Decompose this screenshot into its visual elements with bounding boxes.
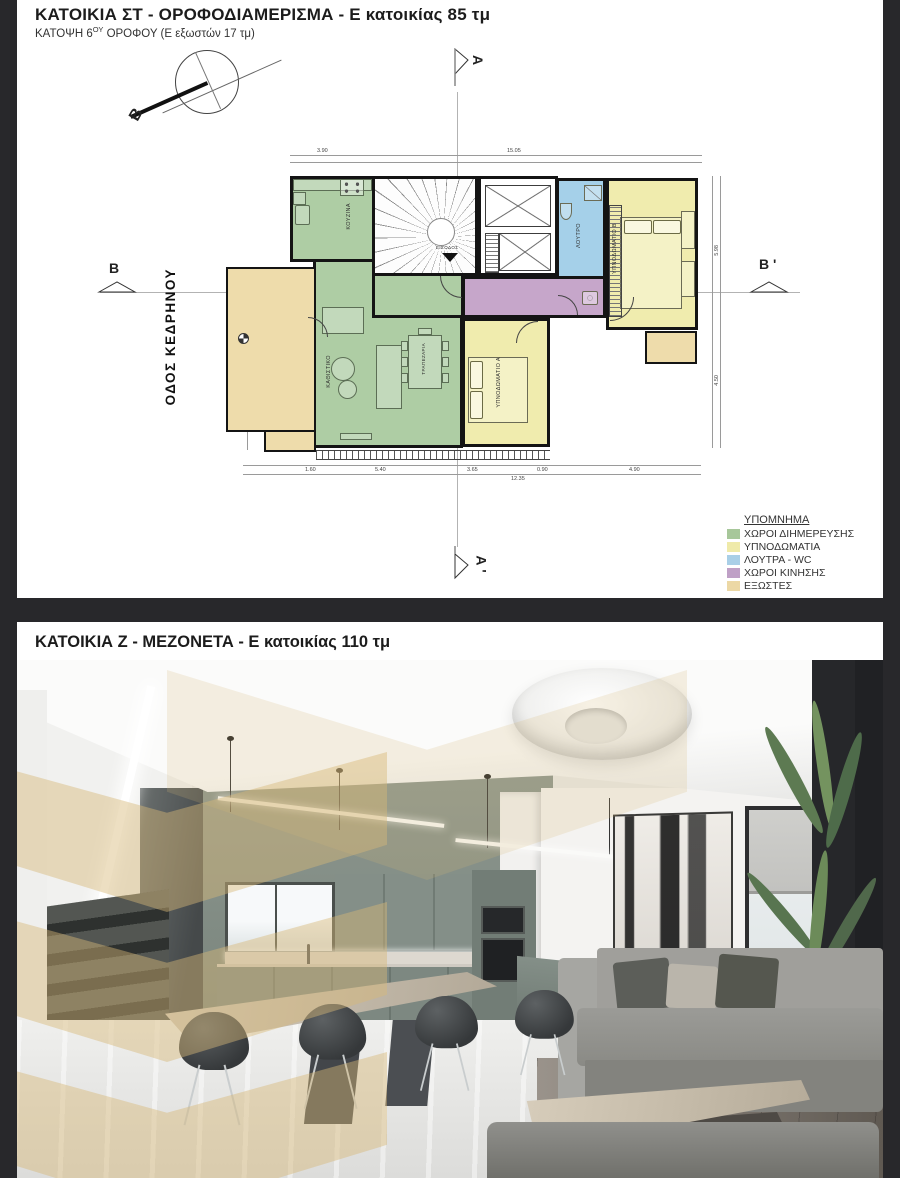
balcony-right xyxy=(645,331,697,364)
legend-item: ΛΟΥΤΡΑ - WC xyxy=(727,553,854,566)
pendant-anchor xyxy=(227,736,234,741)
level-marker xyxy=(238,333,249,344)
entrance-arrow xyxy=(442,253,458,262)
brochure-page: ΚΑΤΟΙΚΙΑ ΣΤ - ΟΡΟΦΟΔΙΑΜΕΡΙΣΜΑ - Ε κατοικ… xyxy=(0,0,900,1178)
kitchen-window-mullion xyxy=(275,884,277,952)
ottoman xyxy=(487,1122,879,1178)
dining-chair xyxy=(401,341,408,351)
service-ladder xyxy=(485,233,499,273)
section-marker-a-label: Α xyxy=(470,55,486,65)
sofa-cushion-dark xyxy=(613,957,674,1013)
plan-subtitle: ΚΑΤΟΨΗ 6ΟΥ ΟΡΟΦΟΥ (Ε εξωστών 17 τμ) xyxy=(35,25,255,40)
north-compass: Β xyxy=(127,40,287,150)
elevator-cab xyxy=(499,233,551,271)
plan-subtitle-sup: ΟΥ xyxy=(93,25,104,34)
coffee-table-round-2 xyxy=(338,380,357,399)
tv-bench xyxy=(340,433,372,440)
legend: ΥΠΟΜΝΗΜΑ ΧΩΡΟΙ ΔΙΗΜΕΡΕΥΣΗΣ ΥΠΝΟΔΩΜΑΤΙΑ Λ… xyxy=(727,514,854,592)
plan-subtitle-suffix: ΟΡΟΦΟΥ (Ε εξωστών 17 τμ) xyxy=(103,28,255,40)
fridge xyxy=(293,192,306,205)
plan-subtitle-prefix: ΚΑΤΟΨΗ 6 xyxy=(35,28,93,40)
render-title: ΚΑΤΟΙΚΙΑ Ζ - ΜΕΖΟΝΕΤΑ - Ε κατοικίας 110 … xyxy=(35,633,390,652)
pendant-wire xyxy=(487,778,488,848)
pendant-wire xyxy=(609,798,610,856)
terrace-railing xyxy=(316,450,550,460)
light-shaft xyxy=(485,185,551,227)
closet-b xyxy=(681,211,695,249)
kitchen-window xyxy=(225,882,335,954)
kitchen-faucet xyxy=(307,944,310,964)
sofa-cushion-light xyxy=(666,963,719,1010)
legend-swatch-living xyxy=(727,529,740,539)
pendant-wire xyxy=(339,772,340,830)
dim-line-right-2 xyxy=(720,176,721,448)
bed-a-pillow xyxy=(470,361,483,389)
pendant-anchor xyxy=(484,774,491,779)
section-marker-a-triangle xyxy=(454,48,470,86)
section-marker-b2-triangle xyxy=(749,280,789,294)
legend-item: ΕΞΩΣΤΕΣ xyxy=(727,579,854,592)
balcony-left xyxy=(226,267,316,432)
legend-label: ΛΟΥΤΡΑ - WC xyxy=(744,554,812,566)
sofa-top xyxy=(322,307,364,334)
dining-chair xyxy=(401,357,408,367)
legend-label: ΥΠΝΟΔΩΜΑΤΙΑ xyxy=(744,541,820,553)
chair-shell xyxy=(515,990,574,1039)
floor-plan-drawing: ΕΙΣΟΔΟΣ ΚΟΥΖΙΝΑ ΚΑΘΙΣΤΙΚΟ ΤΡΑΠΕΖΑΡΙΑ ΥΠΝ… xyxy=(200,145,720,480)
legend-swatch-balconies xyxy=(727,581,740,591)
sofa-cushion-dark xyxy=(715,953,779,1012)
section-marker-b2-label: Β ' xyxy=(759,256,776,272)
dining-chair xyxy=(401,373,408,383)
interior-render xyxy=(17,660,883,1178)
stairwell xyxy=(372,176,478,276)
legend-item: ΧΩΡΟΙ ΔΙΗΜΕΡΕΥΣΗΣ xyxy=(727,527,854,540)
coffee-table-round-1 xyxy=(331,357,355,381)
dining-label: ΤΡΑΠΕΖΑΡΙΑ xyxy=(421,343,426,375)
legend-swatch-circulation xyxy=(727,568,740,578)
legend-item: ΥΠΝΟΔΩΜΑΤΙΑ xyxy=(727,540,854,553)
living-label: ΚΑΘΙΣΤΙΚΟ xyxy=(326,355,332,388)
legend-label: ΧΩΡΟΙ ΚΙΝΗΣΗΣ xyxy=(744,567,826,579)
elevator-lobby xyxy=(478,176,558,276)
section-marker-b-label: Β xyxy=(109,260,119,276)
dining-chair xyxy=(418,328,432,335)
kitchen-label: ΚΟΥΖΙΝΑ xyxy=(346,203,352,230)
legend-title: ΥΠΟΜΝΗΜΑ xyxy=(744,514,854,526)
toilet xyxy=(560,203,572,220)
section-marker-b-triangle xyxy=(97,280,137,294)
legend-swatch-bedrooms xyxy=(727,542,740,552)
render-panel: ΚΑΤΟΙΚΙΑ Ζ - ΜΕΖΟΝΕΤΑ - Ε κατοικίας 110 … xyxy=(17,622,883,1178)
shower xyxy=(584,185,602,201)
balcony-left-step xyxy=(264,430,316,452)
entrance-label: ΕΙΣΟΔΟΣ xyxy=(436,245,458,250)
legend-label: ΕΞΩΣΤΕΣ xyxy=(744,580,792,592)
microwave xyxy=(481,906,525,934)
dining-chair xyxy=(442,341,449,351)
section-marker-a2-triangle xyxy=(454,546,470,580)
dining-chair xyxy=(442,357,449,367)
bed-b-pillow xyxy=(653,220,681,234)
legend-label: ΧΩΡΟΙ ΔΙΗΜΕΡΕΥΣΗΣ xyxy=(744,528,854,540)
backsplash-led xyxy=(225,952,487,964)
sofa-seat xyxy=(577,1008,883,1066)
sofa-side xyxy=(376,345,402,409)
pendant-anchor xyxy=(336,768,343,773)
bath-label: ΛΟΥΤΡΟ xyxy=(576,223,582,248)
bed-a-pillow xyxy=(470,391,483,419)
street-label: ΟΔΟΣ ΚΕΔΡΗΝΟΥ xyxy=(163,268,178,405)
ceiling-lamp-core xyxy=(565,708,627,744)
bedroom-a-label: ΥΠΝΟΔΩΜΑΤΙΟ Α xyxy=(496,357,502,408)
legend-item: ΧΩΡΟΙ ΚΙΝΗΣΗΣ xyxy=(727,566,854,579)
upper-cabinets xyxy=(335,874,487,952)
armchair xyxy=(295,205,310,225)
closet-b xyxy=(681,261,695,297)
floor-plan-panel: ΚΑΤΟΙΚΙΑ ΣΤ - ΟΡΟΦΟΔΙΑΜΕΡΙΣΜΑ - Ε κατοικ… xyxy=(17,0,883,598)
sink xyxy=(582,291,598,305)
legend-swatch-bath xyxy=(727,555,740,565)
dining-chair xyxy=(442,373,449,383)
bedroom-b-label: ΥΠΝΟΔΩΜΑΤΙΟ Β xyxy=(612,223,618,274)
stove xyxy=(340,179,364,196)
bed-b-pillow xyxy=(624,220,652,234)
plan-title: ΚΑΤΟΙΚΙΑ ΣΤ - ΟΡΟΦΟΔΙΑΜΕΡΙΣΜΑ - Ε κατοικ… xyxy=(35,5,490,25)
section-marker-a2-label: Α ' xyxy=(474,555,490,572)
stair-fan xyxy=(375,179,475,273)
